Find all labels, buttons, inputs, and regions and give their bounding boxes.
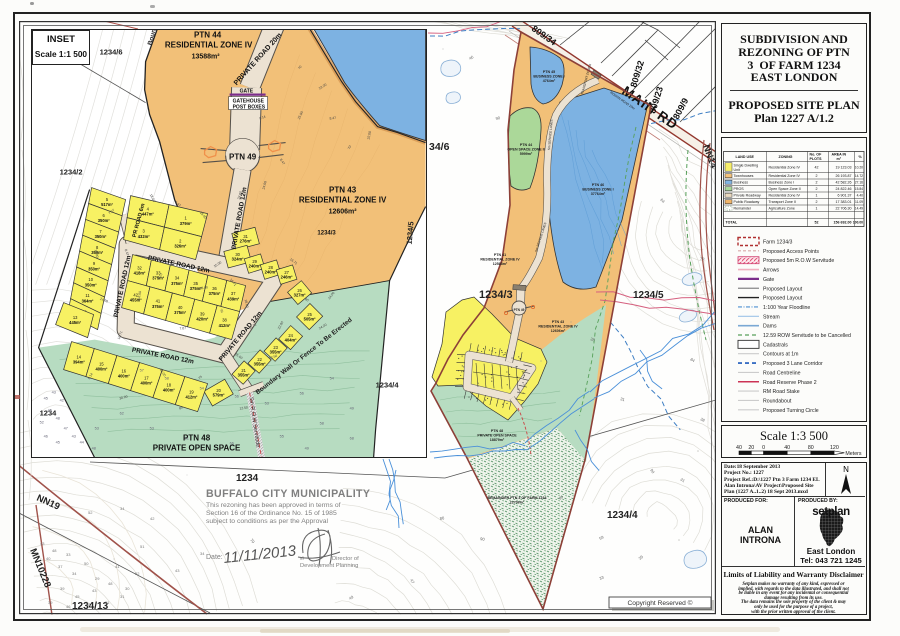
- svg-text:Gate: Gate: [763, 277, 774, 283]
- svg-text:1234/4: 1234/4: [607, 510, 638, 521]
- svg-text:364m²: 364m²: [82, 298, 94, 303]
- svg-text:Roundabout: Roundabout: [763, 398, 792, 404]
- svg-text:PRIVATE OPEN SPACE: PRIVATE OPEN SPACE: [153, 444, 241, 453]
- svg-text:Date:: Date:: [206, 554, 223, 561]
- svg-text:Proposed Layout: Proposed Layout: [763, 286, 803, 292]
- svg-text:Unit: Unit: [734, 168, 740, 172]
- svg-text:RESIDENTIAL ZONE IV: RESIDENTIAL ZONE IV: [480, 257, 520, 261]
- svg-text:Meters: Meters: [845, 451, 862, 457]
- svg-text:51: 51: [185, 437, 189, 441]
- svg-text:ZONING: ZONING: [779, 155, 793, 159]
- svg-text:355m²: 355m²: [238, 373, 250, 378]
- svg-text:Proposed 3 Lane Corridor: Proposed 3 Lane Corridor: [763, 361, 823, 367]
- svg-text:2: 2: [816, 187, 818, 191]
- svg-text:2: 2: [816, 181, 818, 185]
- svg-text:39: 39: [60, 586, 65, 591]
- svg-text:Transport Zone II: Transport Zone II: [769, 200, 796, 204]
- svg-text:379m²: 379m²: [180, 221, 192, 226]
- svg-text:29: 29: [95, 576, 100, 581]
- svg-text:50: 50: [84, 561, 89, 566]
- svg-text:1234/5: 1234/5: [405, 221, 416, 245]
- svg-text:Cadastrals: Cadastrals: [763, 342, 788, 348]
- svg-text:48: 48: [56, 417, 60, 421]
- svg-text:Road Centreline: Road Centreline: [763, 370, 801, 376]
- svg-text:PROS: PROS: [734, 187, 745, 191]
- svg-text:%: %: [859, 155, 863, 159]
- svg-text:19 123.03: 19 123.03: [836, 165, 852, 169]
- svg-text:375m²: 375m²: [152, 304, 164, 309]
- svg-text:40: 40: [736, 445, 742, 451]
- svg-text:40: 40: [46, 556, 51, 561]
- svg-text:PTN 43: PTN 43: [329, 186, 357, 195]
- svg-text:394m²: 394m²: [73, 360, 85, 365]
- svg-text:Public Roadway: Public Roadway: [734, 200, 760, 204]
- svg-text:276m²: 276m²: [240, 239, 252, 244]
- svg-text:39: 39: [48, 600, 53, 605]
- svg-text:45: 45: [48, 409, 52, 413]
- svg-text:PTN 48: PTN 48: [491, 429, 503, 433]
- svg-text:44: 44: [80, 441, 84, 445]
- svg-text:Residential Zone IV: Residential Zone IV: [769, 194, 801, 198]
- svg-text:27.16: 27.16: [855, 181, 863, 185]
- svg-text:46: 46: [66, 604, 71, 609]
- svg-text:48: 48: [92, 447, 96, 451]
- svg-text:Section 16 of the Ordinance No: Section 16 of the Ordinance No. 15 of 19…: [206, 510, 337, 517]
- svg-text:49: 49: [305, 447, 309, 451]
- svg-text:46: 46: [44, 435, 48, 439]
- svg-text:43: 43: [92, 588, 97, 593]
- svg-text:52: 52: [815, 221, 819, 225]
- svg-text:43: 43: [72, 435, 76, 439]
- svg-text:13588m²: 13588m²: [192, 54, 221, 61]
- svg-text:48: 48: [52, 548, 57, 553]
- svg-text:45: 45: [75, 594, 80, 599]
- svg-text:34: 34: [72, 571, 77, 576]
- svg-text:PTN 44: PTN 44: [194, 31, 222, 40]
- svg-text:1234/4: 1234/4: [376, 381, 400, 390]
- svg-text:Proposed 5m R.O.W Servitude: Proposed 5m R.O.W Servitude: [763, 258, 834, 264]
- svg-text:PTN 44: PTN 44: [520, 143, 532, 147]
- svg-text:40: 40: [784, 445, 790, 451]
- svg-text:1: 1: [816, 207, 818, 211]
- svg-text:45: 45: [56, 441, 60, 445]
- svg-text:420m²: 420m²: [196, 317, 208, 322]
- svg-text:PTN 46: PTN 46: [592, 183, 604, 187]
- svg-text:400m²: 400m²: [140, 381, 152, 386]
- svg-text:Proposed Access Points: Proposed Access Points: [763, 249, 819, 255]
- svg-text:BUFFALO CITY MUNICIPALITY: BUFFALO CITY MUNICIPALITY: [206, 488, 370, 500]
- svg-text:12606m²: 12606m²: [329, 209, 358, 216]
- svg-text:48: 48: [108, 581, 113, 586]
- svg-text:Contours at 1m: Contours at 1m: [763, 352, 798, 358]
- svg-text:350m²: 350m²: [95, 234, 107, 239]
- svg-text:4.40: 4.40: [857, 194, 864, 198]
- svg-text:17 383.01: 17 383.01: [836, 200, 852, 204]
- svg-text:1: 1: [816, 194, 818, 198]
- svg-text:412m²: 412m²: [185, 395, 197, 400]
- svg-text:4764m²: 4764m²: [543, 79, 556, 83]
- svg-text:100.00: 100.00: [853, 221, 863, 225]
- svg-text:45: 45: [44, 397, 48, 401]
- svg-text:5999m²: 5999m²: [520, 152, 533, 156]
- svg-text:Private Roadway: Private Roadway: [734, 194, 761, 198]
- svg-text:120: 120: [830, 445, 839, 451]
- svg-text:350m²: 350m²: [98, 218, 110, 223]
- svg-text:49: 49: [350, 407, 354, 411]
- svg-text:Remainder: Remainder: [734, 207, 752, 211]
- svg-text:375m²: 375m²: [209, 291, 221, 296]
- svg-text:14.49: 14.49: [855, 207, 863, 211]
- svg-text:42: 42: [150, 516, 155, 521]
- svg-text:Arrows: Arrows: [763, 268, 780, 274]
- svg-text:439m²: 439m²: [227, 296, 239, 301]
- svg-text:52: 52: [135, 571, 140, 576]
- svg-text:43: 43: [40, 541, 45, 546]
- svg-text:10.20: 10.20: [855, 165, 863, 169]
- svg-text:PTN 49: PTN 49: [514, 308, 525, 312]
- svg-text:Business: Business: [734, 181, 749, 185]
- svg-text:Tel: 043 721 1245: Tel: 043 721 1245: [800, 556, 862, 565]
- svg-text:31: 31: [120, 594, 125, 599]
- svg-text:setplan: setplan: [812, 506, 850, 518]
- svg-text:1234/3: 1234/3: [479, 289, 513, 301]
- svg-text:Proposed Turning Circle: Proposed Turning Circle: [763, 408, 819, 414]
- svg-text:30: 30: [125, 586, 130, 591]
- svg-text:80: 80: [808, 445, 814, 451]
- svg-text:LAND USE: LAND USE: [736, 155, 755, 159]
- svg-text:51: 51: [140, 544, 145, 549]
- svg-text:2: 2: [816, 200, 818, 204]
- svg-text:East London: East London: [807, 547, 856, 556]
- svg-text:26 193.87: 26 193.87: [836, 174, 852, 178]
- svg-text:47: 47: [64, 427, 68, 431]
- svg-text:43: 43: [52, 391, 56, 395]
- svg-text:79: 79: [700, 256, 705, 261]
- svg-text:34: 34: [200, 551, 205, 556]
- svg-text:12606m²: 12606m²: [551, 329, 566, 333]
- svg-text:1234: 1234: [236, 473, 259, 484]
- svg-text:24 822.46: 24 822.46: [836, 187, 852, 191]
- svg-text:1234/3: 1234/3: [317, 231, 336, 237]
- svg-text:BUSINESS ZONE I: BUSINESS ZONE I: [582, 187, 613, 191]
- svg-text:41: 41: [115, 564, 120, 569]
- svg-text:PTN 45: PTN 45: [543, 70, 555, 74]
- svg-text:Residential Zone IV: Residential Zone IV: [769, 165, 801, 169]
- svg-text:Road Reserve Phase 2: Road Reserve Phase 2: [763, 380, 817, 386]
- svg-text:Development Planning: Development Planning: [300, 563, 358, 569]
- svg-text:Director of: Director of: [332, 556, 359, 562]
- svg-text:66: 66: [230, 442, 234, 446]
- svg-text:34: 34: [120, 506, 125, 511]
- svg-text:Residential Zone IV: Residential Zone IV: [769, 174, 801, 178]
- svg-text:N: N: [843, 465, 849, 474]
- svg-text:PRIVATE OPEN SPACE: PRIVATE OPEN SPACE: [477, 433, 517, 437]
- svg-text:22706m²: 22706m²: [510, 500, 525, 504]
- svg-text:326m²: 326m²: [174, 244, 186, 249]
- svg-text:327m²: 327m²: [294, 293, 306, 298]
- svg-text:Farm 1234/3: Farm 1234/3: [763, 240, 793, 246]
- svg-text:43: 43: [175, 568, 180, 573]
- svg-text:68: 68: [350, 437, 354, 441]
- svg-text:20: 20: [748, 445, 754, 451]
- svg-text:PTN 49: PTN 49: [229, 153, 257, 162]
- svg-text:324m²: 324m²: [232, 257, 244, 262]
- svg-text:51: 51: [105, 600, 110, 605]
- svg-text:Business Zone I: Business Zone I: [769, 181, 795, 185]
- svg-text:GATE: GATE: [240, 89, 254, 95]
- svg-text:PTN 43: PTN 43: [552, 320, 564, 324]
- svg-text:57: 57: [140, 369, 144, 373]
- svg-text:375m²: 375m²: [174, 310, 186, 315]
- svg-text:37764m²: 37764m²: [591, 192, 606, 196]
- svg-text:42: 42: [815, 165, 819, 169]
- svg-text:m²: m²: [837, 157, 842, 161]
- svg-text:subject to conditions as per t: subject to conditions as per the Approva…: [206, 518, 329, 525]
- svg-text:53: 53: [265, 402, 269, 406]
- svg-text:52: 52: [88, 510, 93, 515]
- svg-text:6 901.37: 6 901.37: [838, 194, 852, 198]
- svg-text:42 582.26: 42 582.26: [836, 181, 852, 185]
- svg-text:12588m²: 12588m²: [493, 262, 508, 266]
- svg-text:18879m²: 18879m²: [490, 438, 505, 442]
- svg-text:54: 54: [330, 377, 334, 381]
- svg-text:PLOTS: PLOTS: [810, 157, 823, 161]
- svg-text:Proposed Layout: Proposed Layout: [763, 296, 803, 302]
- svg-text:412m²: 412m²: [219, 323, 231, 328]
- svg-text:375m²: 375m²: [171, 281, 183, 286]
- svg-text:56: 56: [300, 392, 304, 396]
- svg-text:7.07: 7.07: [179, 326, 186, 331]
- svg-text:RESIDENTIAL ZONE IV: RESIDENTIAL ZONE IV: [299, 196, 387, 205]
- svg-text:PTN 41: PTN 41: [494, 253, 506, 257]
- svg-text:517m²: 517m²: [101, 202, 113, 207]
- svg-text:0: 0: [762, 445, 765, 451]
- svg-text:11.09: 11.09: [855, 200, 863, 204]
- svg-text:Open Space Zone II: Open Space Zone II: [769, 187, 801, 191]
- svg-text:22 706.30: 22 706.30: [836, 207, 852, 211]
- svg-text:No. OF: No. OF: [810, 153, 823, 157]
- svg-text:15.84: 15.84: [855, 187, 863, 191]
- svg-text:Townhouses: Townhouses: [734, 174, 754, 178]
- svg-text:156 692.00: 156 692.00: [834, 221, 852, 225]
- svg-text:Stream: Stream: [763, 314, 780, 320]
- svg-text:14.72: 14.72: [855, 174, 863, 178]
- svg-text:579m²: 579m²: [213, 393, 225, 398]
- svg-text:432m²: 432m²: [138, 234, 150, 239]
- svg-text:RESIDENTIAL ZONE IV: RESIDENTIAL ZONE IV: [165, 41, 253, 50]
- svg-text:404m²: 404m²: [285, 338, 297, 343]
- svg-text:Agriculture Zone: Agriculture Zone: [769, 207, 795, 211]
- svg-text:246m²: 246m²: [281, 275, 293, 280]
- svg-text:240m²: 240m²: [265, 270, 277, 275]
- svg-text:350m²: 350m²: [88, 266, 100, 271]
- svg-text:355m²: 355m²: [254, 362, 266, 367]
- svg-text:2: 2: [816, 174, 818, 178]
- svg-text:8.47: 8.47: [329, 116, 336, 121]
- svg-text:58: 58: [320, 422, 324, 426]
- svg-text:Dams: Dams: [763, 324, 777, 330]
- svg-text:RM Road Stake: RM Road Stake: [763, 389, 800, 395]
- svg-text:42: 42: [60, 399, 64, 403]
- svg-text:Copyright Reserved ©: Copyright Reserved ©: [628, 599, 693, 607]
- svg-text:1234/5: 1234/5: [633, 290, 664, 301]
- svg-text:53: 53: [95, 427, 99, 431]
- svg-text:OPEN SPACE ZONE II: OPEN SPACE ZONE II: [507, 147, 544, 151]
- svg-text:12.59 ROW Servitude to be Canc: 12.59 ROW Servitude to be Cancelled: [763, 333, 851, 339]
- svg-text:400m²: 400m²: [118, 374, 130, 379]
- svg-text:TOTAL: TOTAL: [726, 221, 738, 225]
- svg-text:1234/6: 1234/6: [100, 48, 123, 57]
- svg-text:62: 62: [120, 412, 124, 416]
- svg-text:52: 52: [40, 421, 44, 425]
- svg-text:54: 54: [200, 387, 204, 391]
- svg-text:37: 37: [58, 564, 63, 569]
- svg-text:418m²: 418m²: [134, 271, 146, 276]
- svg-text:48: 48: [86, 602, 91, 607]
- svg-text:1:100 Year Floodline: 1:100 Year Floodline: [763, 305, 810, 311]
- svg-text:400m²: 400m²: [163, 388, 175, 393]
- svg-text:BUSINESS ZONE I: BUSINESS ZONE I: [533, 74, 564, 78]
- svg-text:33: 33: [66, 552, 71, 557]
- svg-text:505m²: 505m²: [304, 317, 316, 322]
- svg-text:RESIDENTIAL ZONE IV: RESIDENTIAL ZONE IV: [538, 324, 578, 328]
- svg-text:This rezoning has been approve: This rezoning has been approved in terms…: [206, 502, 341, 509]
- svg-text:34/6: 34/6: [429, 141, 450, 153]
- svg-text:240m²: 240m²: [249, 264, 261, 269]
- svg-text:58: 58: [165, 377, 169, 381]
- svg-text:400m²: 400m²: [95, 367, 107, 372]
- svg-text:53: 53: [150, 427, 154, 431]
- svg-text:350m²: 350m²: [85, 282, 97, 287]
- svg-text:REMAINDER PTN 3 OF FARM 1234: REMAINDER PTN 3 OF FARM 1234: [487, 496, 546, 500]
- svg-text:55: 55: [280, 435, 284, 439]
- svg-text:1234/2: 1234/2: [60, 168, 83, 177]
- svg-text:AREA IN: AREA IN: [832, 153, 847, 157]
- svg-text:445m²: 445m²: [69, 320, 81, 325]
- svg-text:POST BOXES: POST BOXES: [233, 105, 266, 111]
- svg-text:56: 56: [235, 395, 239, 399]
